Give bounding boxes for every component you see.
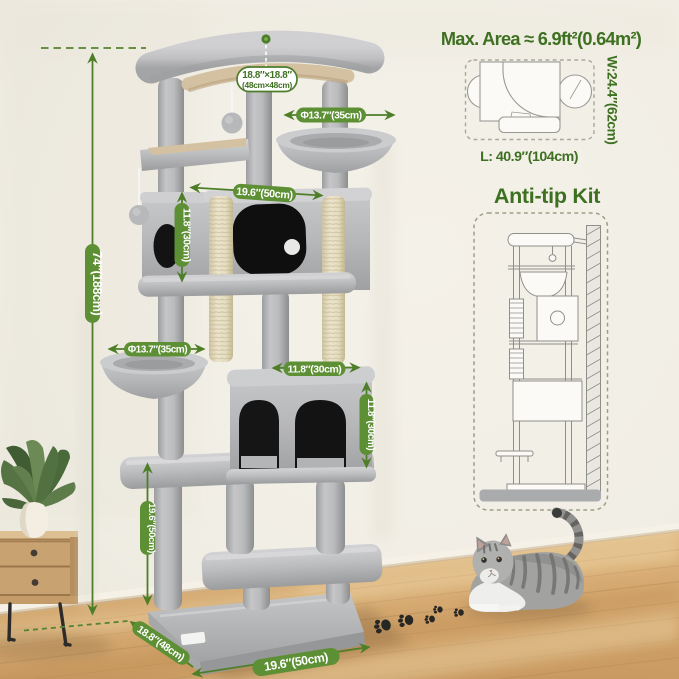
- svg-text:(48cm×48cm): (48cm×48cm): [242, 80, 293, 90]
- svg-text:L: 40.9″(104cm): L: 40.9″(104cm): [480, 149, 579, 165]
- svg-text:Max. Area ≈ 6.9ft²(0.64m²): Max. Area ≈ 6.9ft²(0.64m²): [441, 29, 642, 49]
- svg-text:74″(188cm): 74″(188cm): [90, 252, 104, 316]
- svg-text:Φ13.7″(35cm): Φ13.7″(35cm): [128, 345, 187, 356]
- svg-text:19.6″(50cm): 19.6″(50cm): [146, 503, 157, 553]
- svg-text:W:24.4″(62cm): W:24.4″(62cm): [604, 56, 619, 145]
- svg-text:11.8″(30cm): 11.8″(30cm): [288, 364, 342, 375]
- svg-text:Φ13.7″(35cm): Φ13.7″(35cm): [300, 111, 361, 122]
- svg-text:11.8″(30cm): 11.8″(30cm): [180, 208, 191, 262]
- svg-text:Anti-tip Kit: Anti-tip Kit: [494, 184, 600, 208]
- svg-text:11.8″(30cm): 11.8″(30cm): [365, 399, 376, 451]
